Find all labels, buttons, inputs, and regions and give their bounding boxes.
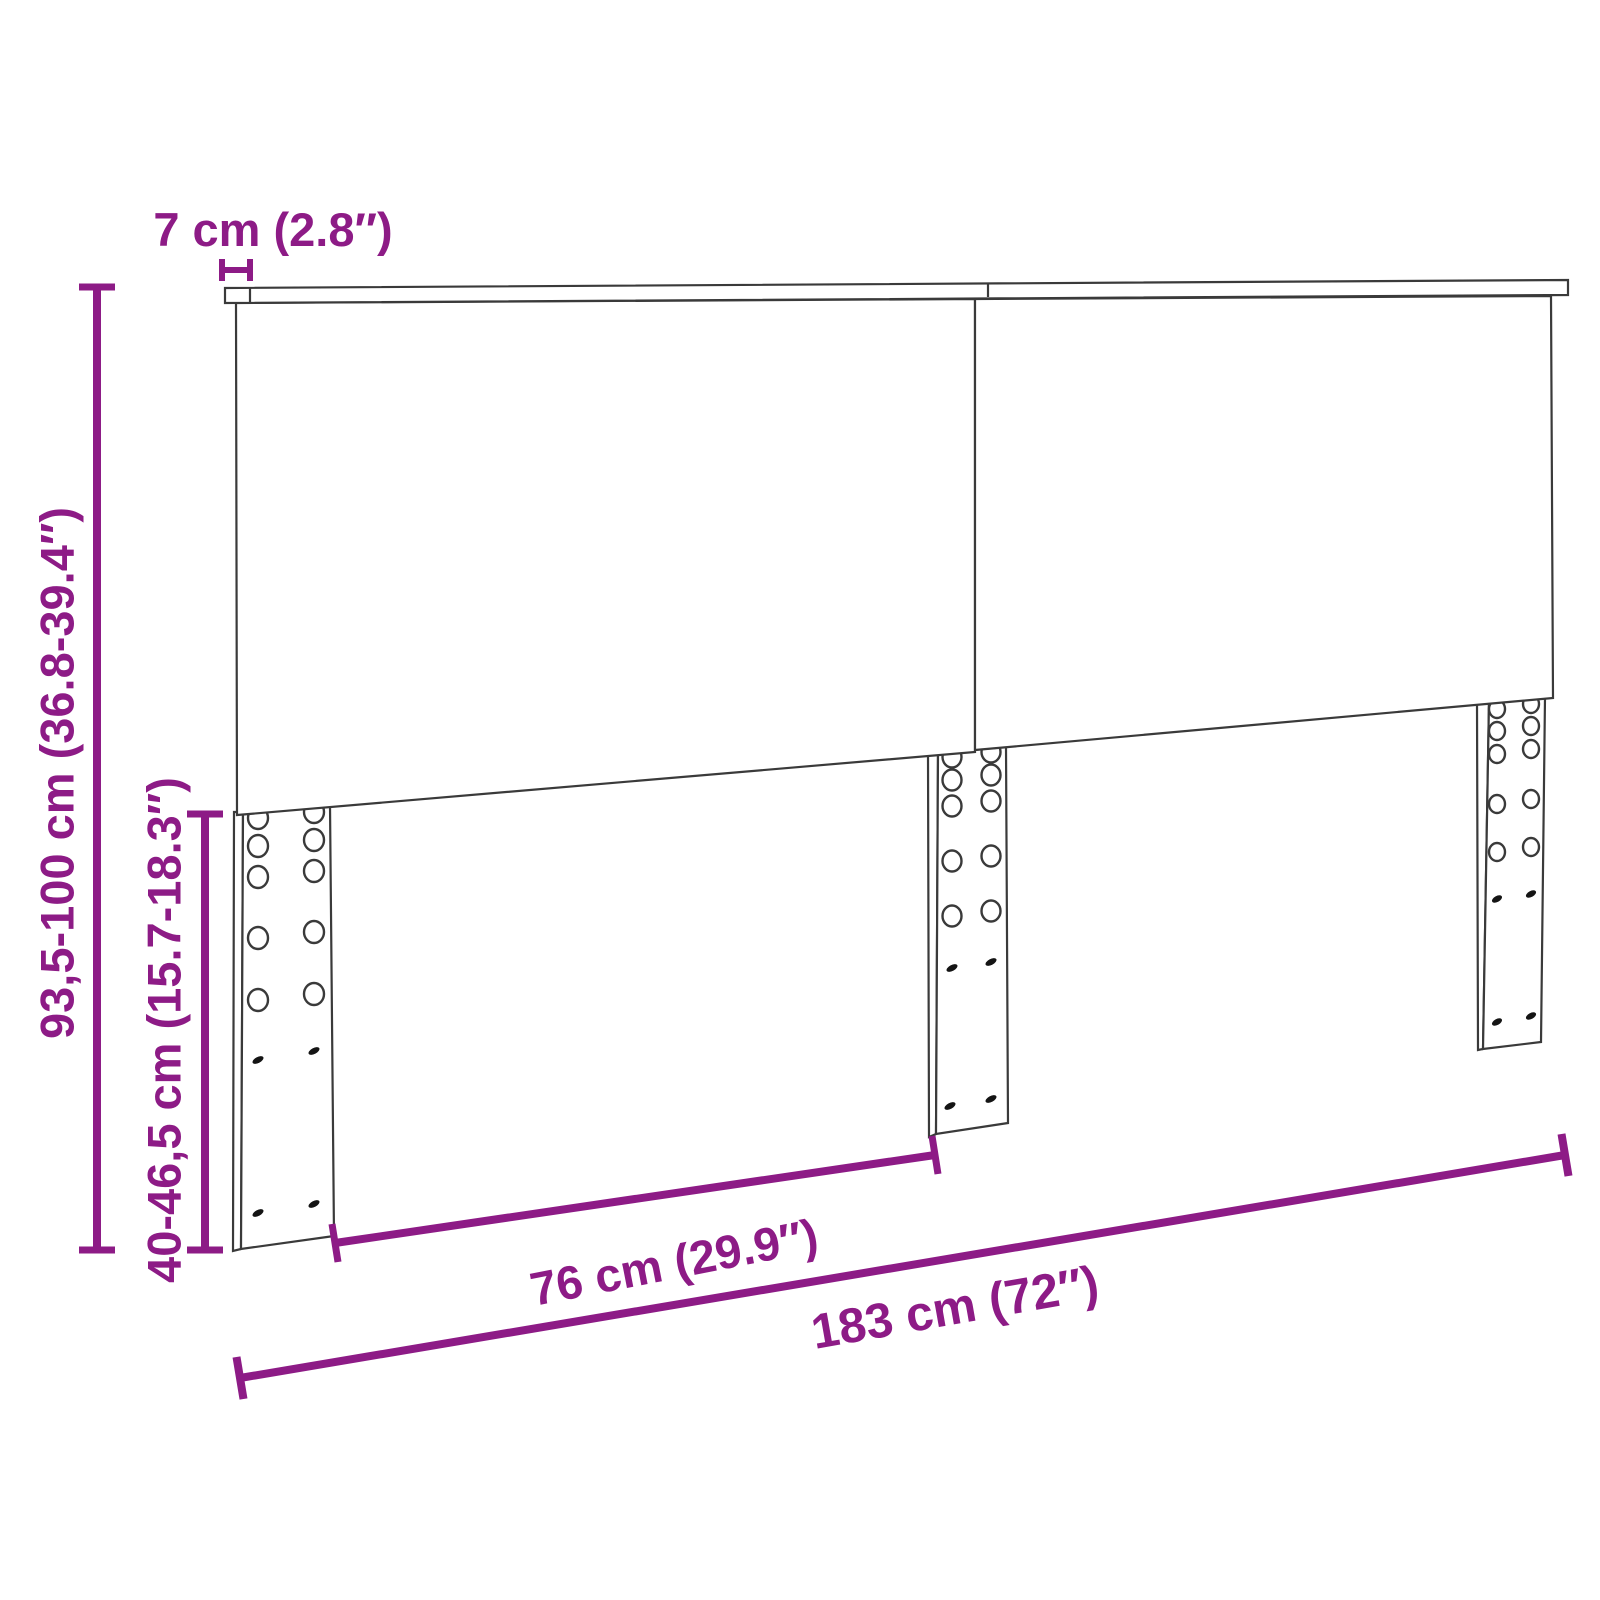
- width-dimension: 183 cm (72″): [237, 1134, 1569, 1399]
- height-dimension-label: 93,5-100 cm (36.8-39.4″): [31, 507, 84, 1039]
- leg-front-face: [936, 747, 1008, 1134]
- leg-right: [1477, 695, 1545, 1050]
- leg-spacing-dimension-label: 76 cm (29.9″): [526, 1208, 822, 1316]
- leg-spacing-dimension: 76 cm (29.9″): [332, 1136, 938, 1316]
- leg-left: [233, 801, 334, 1251]
- leg-spacing-dimension-line: [335, 1155, 935, 1243]
- panel-left: [236, 299, 975, 815]
- width-dimension-tick: [1562, 1134, 1569, 1176]
- height-dimension: 93,5-100 cm (36.8-39.4″): [31, 287, 116, 1250]
- leg-spacing-dimension-tick: [332, 1224, 338, 1262]
- leg-height-dimension: 40-46,5 cm (15.7-18.3″): [138, 777, 224, 1283]
- leg-front-face: [241, 805, 334, 1249]
- diagram-stage: 7 cm (2.8″) 93,5-100 cm (36.8-39.4″) 40-…: [0, 0, 1600, 1600]
- diagram-canvas: 7 cm (2.8″) 93,5-100 cm (36.8-39.4″) 40-…: [0, 0, 1600, 1600]
- leg-front-face: [1483, 697, 1545, 1049]
- leg-middle: [928, 742, 1008, 1138]
- panel-right: [975, 296, 1553, 750]
- width-dimension-tick: [237, 1357, 244, 1399]
- leg-spacing-dimension-tick: [932, 1136, 938, 1174]
- thickness-dimension-label: 7 cm (2.8″): [153, 203, 392, 256]
- thickness-dimension: 7 cm (2.8″): [153, 203, 392, 281]
- leg-height-dimension-label: 40-46,5 cm (15.7-18.3″): [138, 777, 191, 1283]
- headboard: [225, 280, 1568, 1251]
